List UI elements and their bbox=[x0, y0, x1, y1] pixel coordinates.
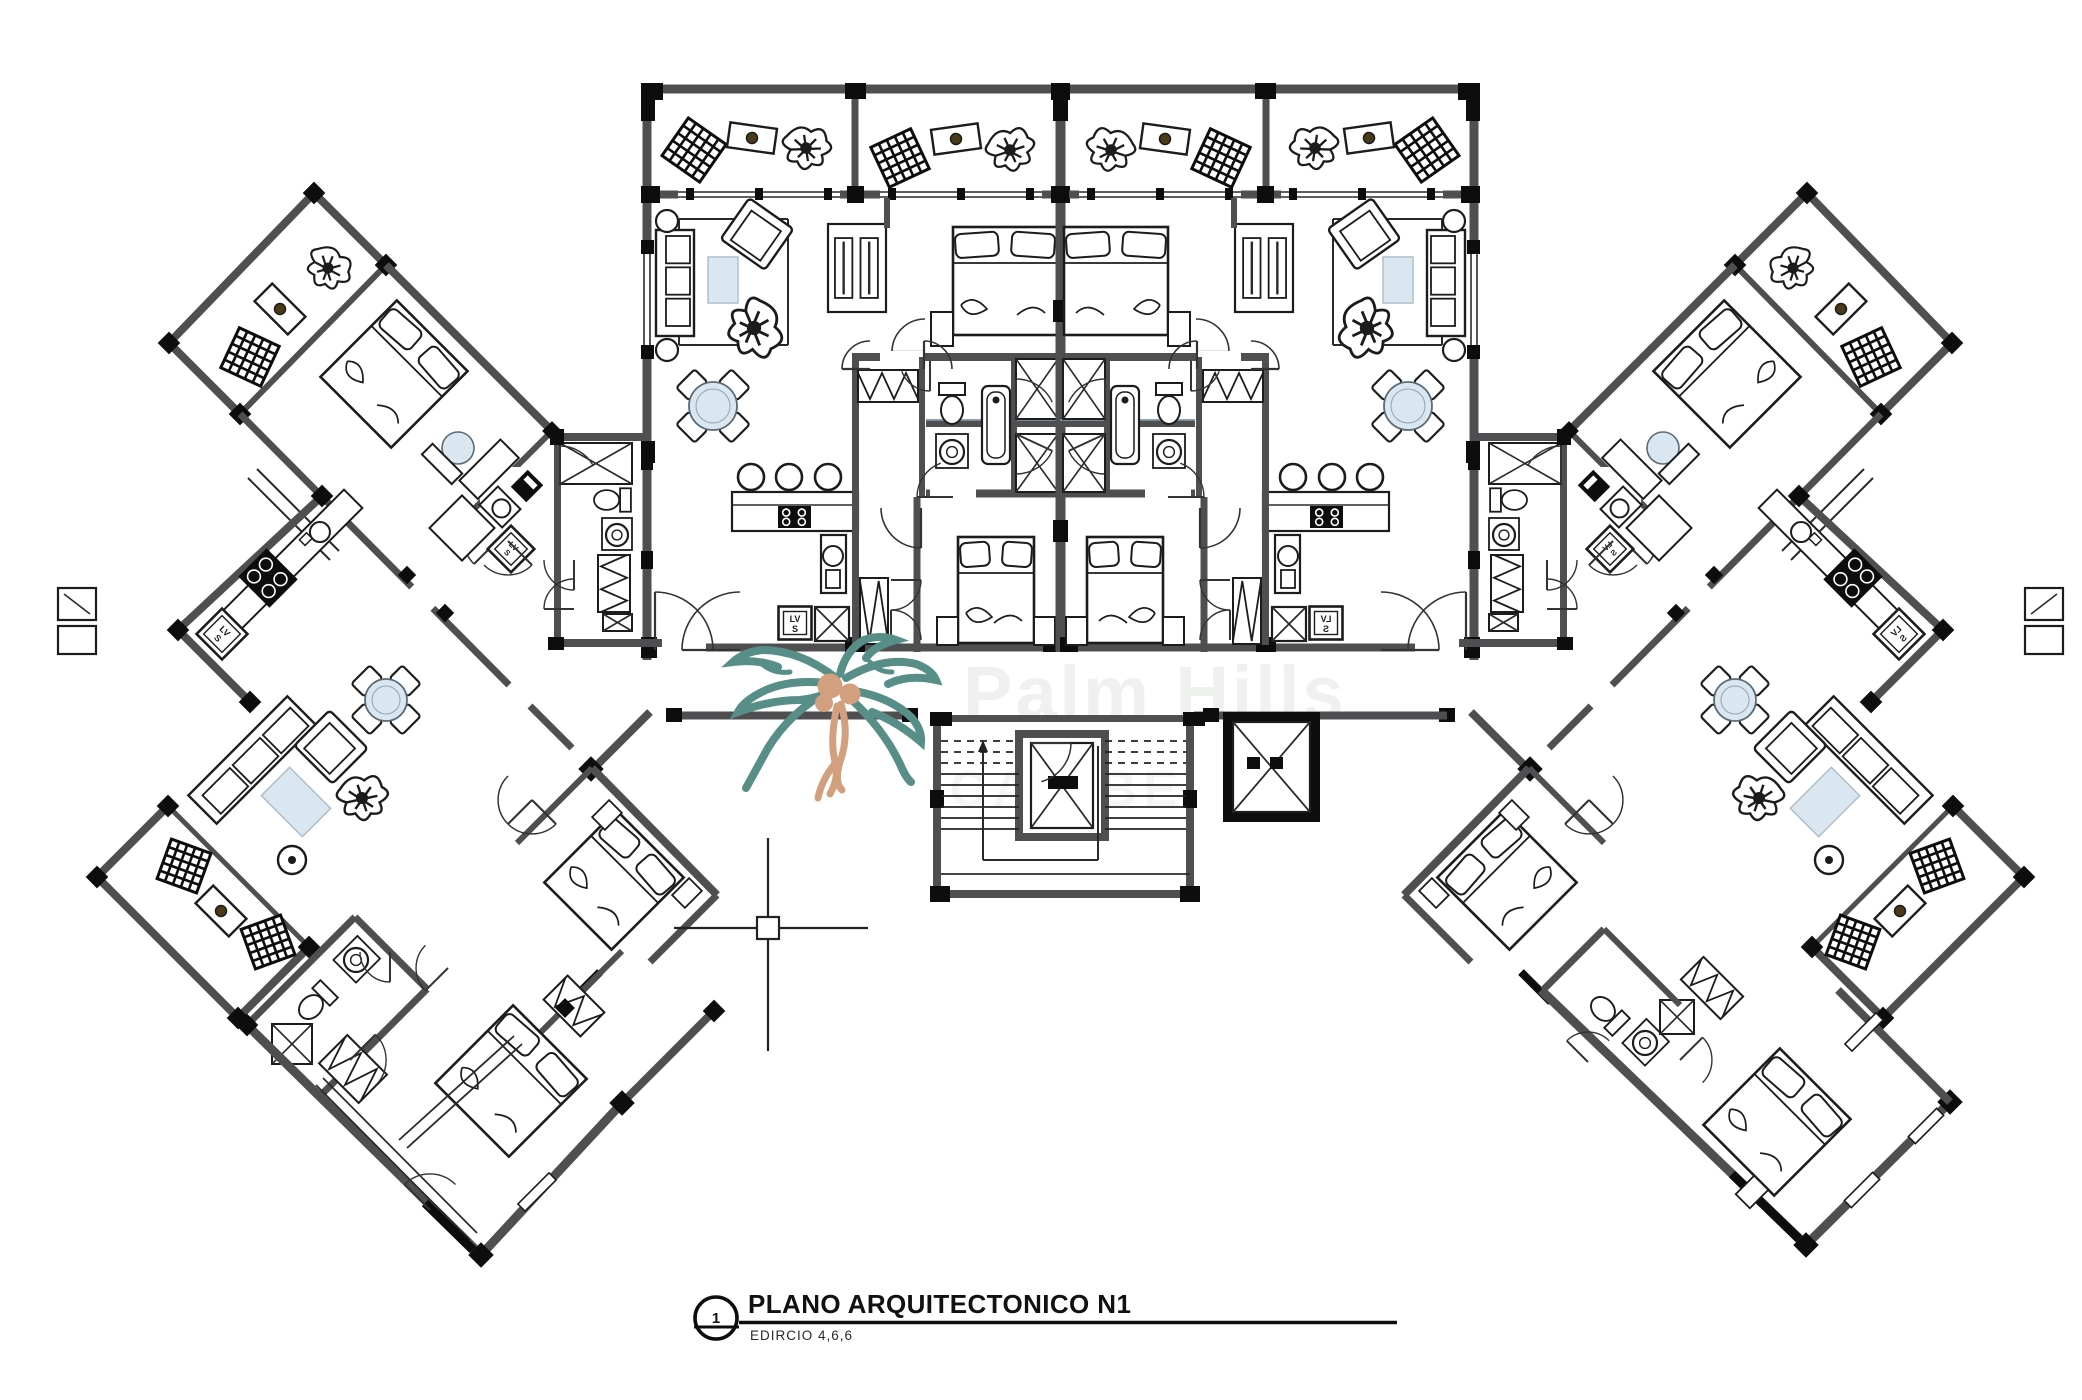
svg-text:S: S bbox=[1323, 624, 1329, 634]
svg-text:LV: LV bbox=[1321, 614, 1332, 624]
svg-text:S: S bbox=[792, 624, 798, 634]
svg-text:PLANO ARQUITECTONICO N1: PLANO ARQUITECTONICO N1 bbox=[748, 1289, 1131, 1319]
svg-text:1: 1 bbox=[712, 1310, 720, 1327]
svg-text:LV: LV bbox=[790, 614, 801, 624]
svg-text:EDIRCIO 4,6,6: EDIRCIO 4,6,6 bbox=[750, 1328, 853, 1343]
